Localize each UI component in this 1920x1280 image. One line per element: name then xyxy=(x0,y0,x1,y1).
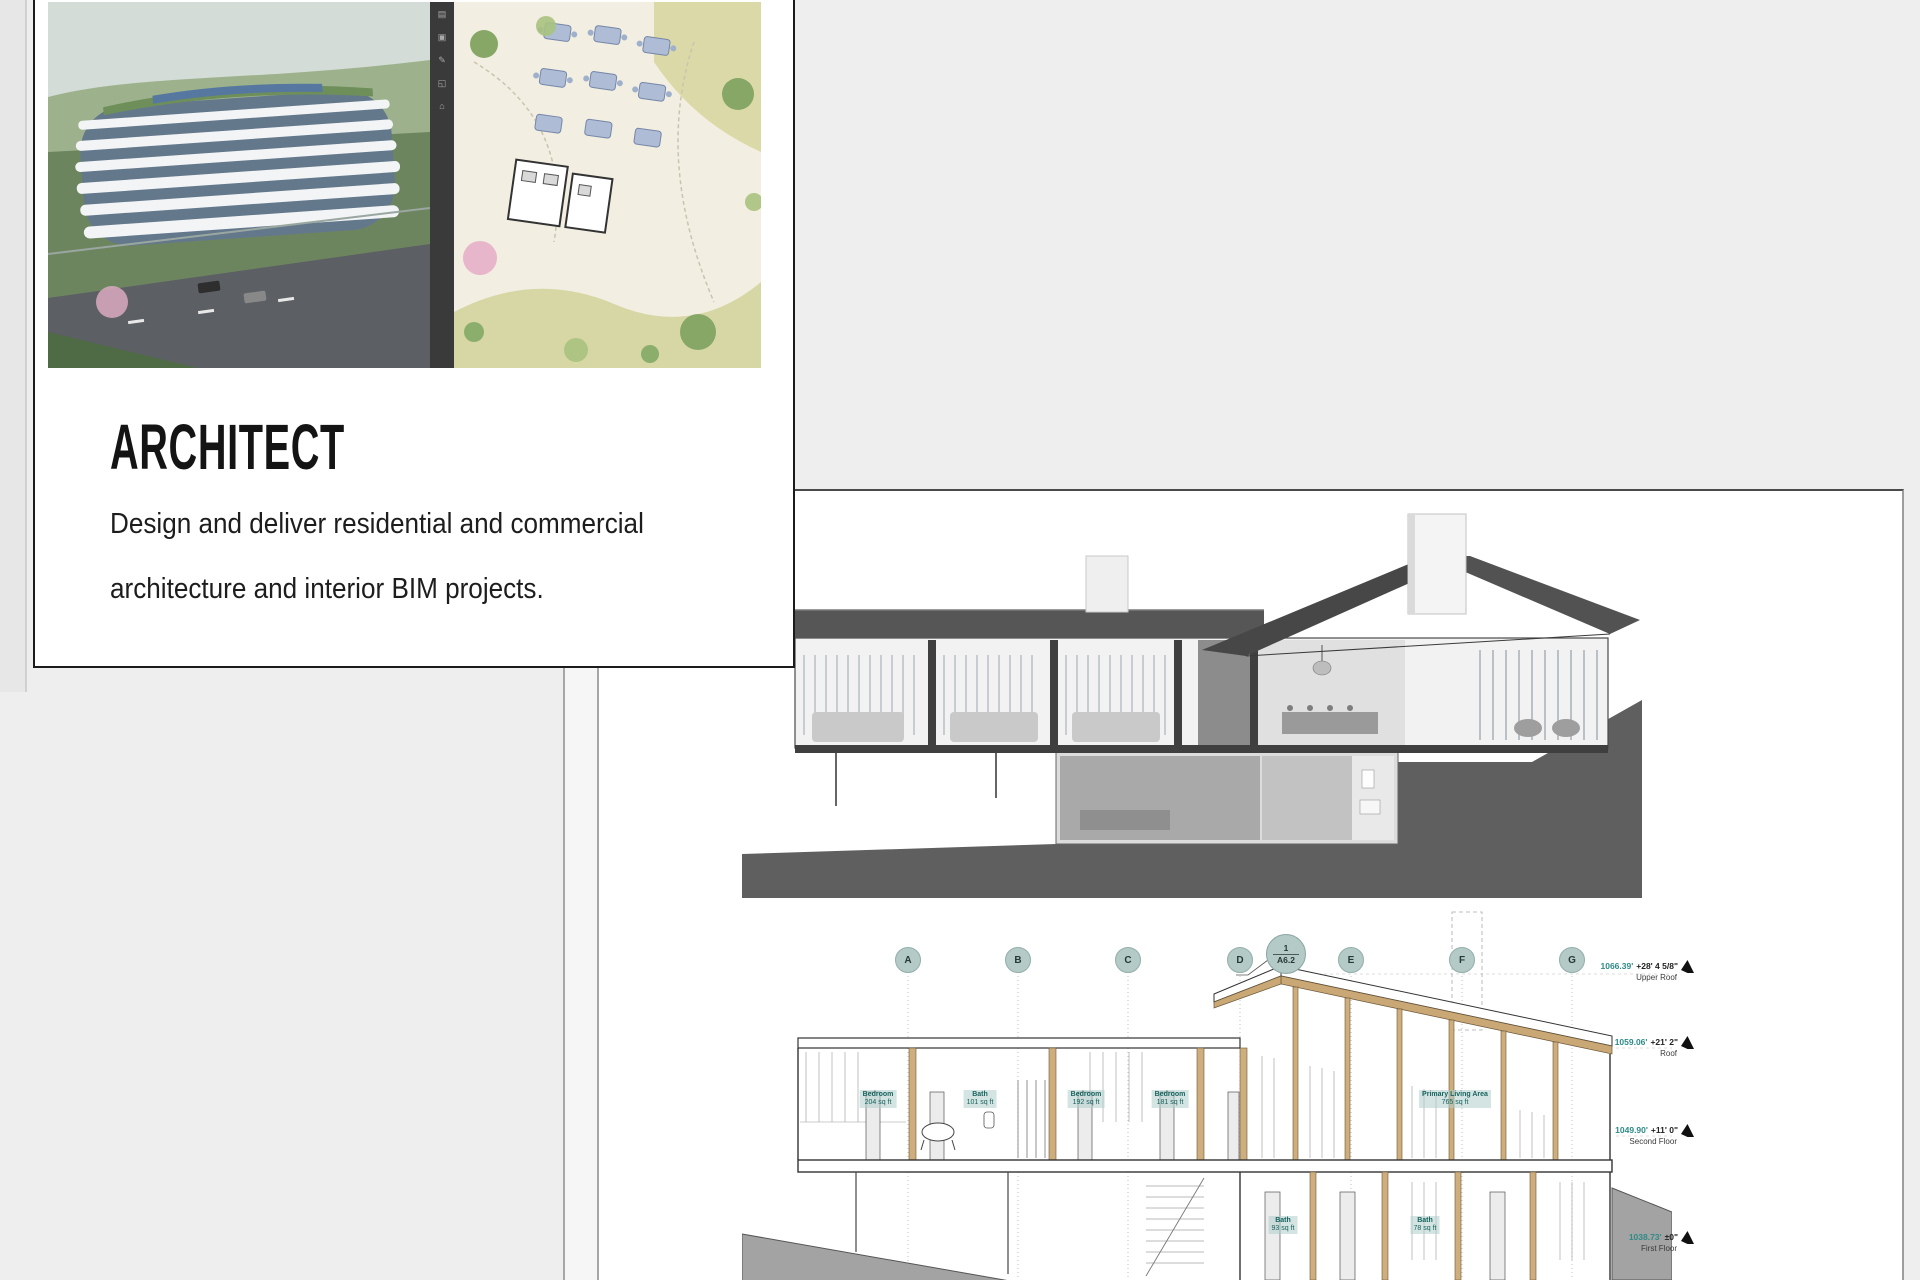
panel-icon: ⌂ xyxy=(439,102,444,111)
callout-detail-number: 1 xyxy=(1284,944,1289,953)
room-tag: Bath101 sq ft xyxy=(964,1090,997,1108)
background-sheet-edge xyxy=(563,600,599,1280)
card-description-line2: architecture and interior BIM projects. xyxy=(110,557,644,622)
left-margin-strip xyxy=(0,0,25,692)
longitudinal-section-render xyxy=(742,510,1672,910)
section-callout: 1 A6.2 xyxy=(1266,934,1306,974)
grid-bubble-e: E xyxy=(1338,947,1364,973)
card-media: ▤ ▣ ✎ ◱ ⌂ xyxy=(48,2,761,368)
card-description: Design and deliver residential and comme… xyxy=(110,492,644,622)
panel-icon: ▣ xyxy=(438,33,447,42)
grid-bubble-f: F xyxy=(1449,947,1475,973)
level-flag-icon xyxy=(1681,960,1694,973)
level-marker-roof: 1059.06'+21' 2" Roof xyxy=(1566,1036,1694,1059)
level-marker-upper-roof: 1066.39'+28' 4 5/8" Upper Roof xyxy=(1566,960,1694,983)
left-margin-line xyxy=(25,0,27,692)
level-flag-icon xyxy=(1681,1124,1694,1137)
level-flag-icon xyxy=(1681,1036,1694,1049)
card-title: ARCHITECT xyxy=(110,410,345,484)
room-tag: Primary Living Area765 sq ft xyxy=(1419,1090,1491,1108)
room-tag: Bedroom181 sq ft xyxy=(1152,1090,1189,1108)
panel-icon: ◱ xyxy=(438,79,447,88)
grid-bubble-d: D xyxy=(1227,947,1253,973)
card-description-line1: Design and deliver residential and comme… xyxy=(110,492,644,557)
room-tag: Bath93 sq ft xyxy=(1269,1216,1298,1234)
room-tag: Bath78 sq ft xyxy=(1411,1216,1440,1234)
level-marker-first-floor: 1038.73'±0" First Floor xyxy=(1566,1231,1694,1254)
app-toolbar-strip: ▤ ▣ ✎ ◱ ⌂ xyxy=(430,2,454,368)
grid-bubble-c: C xyxy=(1115,947,1141,973)
site-plan-illustration xyxy=(454,2,761,368)
room-tag: Bedroom204 sq ft xyxy=(860,1090,897,1108)
building-photo xyxy=(48,2,430,368)
grid-bubble-b: B xyxy=(1005,947,1031,973)
level-flag-icon xyxy=(1681,1231,1694,1244)
panel-icon: ▤ xyxy=(438,10,447,19)
level-marker-second-floor: 1049.90'+11' 0" Second Floor xyxy=(1566,1124,1694,1147)
page-canvas: 2 Longitudinal Section Scale: 1/4" = 1'-… xyxy=(0,0,1920,1280)
room-tag: Bedroom192 sq ft xyxy=(1068,1090,1105,1108)
panel-icon: ✎ xyxy=(438,56,446,65)
architect-role-card[interactable]: ▤ ▣ ✎ ◱ ⌂ xyxy=(33,0,795,668)
grid-bubble-a: A xyxy=(895,947,921,973)
callout-sheet-number: A6.2 xyxy=(1277,956,1295,965)
